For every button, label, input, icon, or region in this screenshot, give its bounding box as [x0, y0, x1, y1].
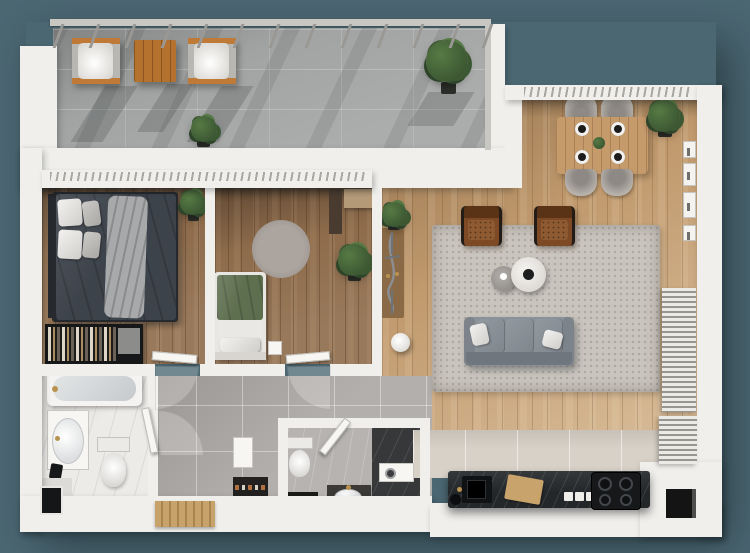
dining-corner-plant	[648, 100, 680, 132]
armchair-seat	[468, 220, 495, 240]
floor-shaft	[40, 486, 63, 515]
panel-handle	[687, 148, 690, 156]
slatted-radiator	[662, 288, 696, 412]
bathtub-faucet	[52, 386, 58, 392]
sink-faucet	[457, 487, 462, 492]
wall-panel	[683, 192, 696, 218]
bedroom-divider-wall	[205, 180, 215, 376]
living-left-wall	[505, 85, 522, 188]
living-window-glazing	[524, 87, 692, 97]
slatted-radiator	[659, 416, 697, 464]
centerpiece-plant	[593, 137, 605, 149]
bottom-exterior-wall	[20, 496, 432, 532]
basin-faucet	[346, 485, 351, 490]
cup	[500, 273, 507, 280]
wall-panel	[683, 163, 696, 186]
washing-machine	[379, 463, 414, 482]
burner	[599, 494, 611, 506]
dining-chair	[565, 169, 597, 196]
toilet-tank	[286, 437, 313, 449]
burner	[598, 477, 612, 491]
pillow	[57, 229, 82, 259]
living-area-rug	[432, 225, 660, 392]
pillow	[220, 338, 260, 352]
switch-plate	[575, 492, 584, 501]
place-setting	[575, 122, 589, 136]
toilet-room-wall	[278, 428, 288, 500]
throw-blanket	[104, 195, 148, 318]
panel-handle	[687, 203, 690, 211]
bedroom-plant	[338, 244, 370, 276]
panel-handle	[687, 172, 690, 180]
single-bed-duvet	[217, 275, 263, 320]
pillow	[57, 198, 83, 227]
pillow	[82, 231, 102, 259]
panel-handle	[687, 232, 690, 240]
nightstand	[268, 341, 282, 355]
terrace-lounge-chair	[188, 38, 236, 84]
switch-plate	[564, 492, 573, 501]
terrace-tree	[426, 40, 468, 82]
entrance-doormat	[155, 501, 215, 527]
wall-panel	[683, 141, 696, 158]
round-rug	[252, 220, 310, 278]
floor-pouf	[391, 333, 410, 352]
burner	[620, 494, 632, 506]
wardrobe-drawer-unit	[118, 328, 140, 354]
bed-sheet	[217, 320, 263, 338]
place-setting	[575, 150, 589, 164]
bedroom-window-glazing	[50, 172, 366, 181]
washer-drum	[385, 468, 396, 479]
shoe-row	[235, 485, 266, 490]
entry-plant	[382, 202, 407, 227]
toilet-bowl	[289, 450, 310, 477]
dresser	[344, 189, 372, 208]
toilet-room-wall	[420, 418, 430, 505]
toilet-tank	[97, 437, 130, 452]
toilet-room-wall	[278, 418, 430, 428]
wall-panel	[683, 225, 696, 241]
tree-pot	[441, 82, 456, 94]
left-exterior-wall	[20, 148, 42, 532]
hanging-clothes	[48, 327, 116, 361]
burner	[619, 477, 633, 491]
kettle	[450, 494, 461, 505]
pillow	[81, 200, 101, 227]
master-bed-headboard	[48, 194, 55, 318]
sofa-cushion	[506, 319, 534, 353]
terrace-plant	[191, 116, 217, 142]
bicycle	[381, 228, 404, 318]
chair-cushion	[194, 43, 230, 79]
washbasin	[52, 418, 84, 464]
tall-wardrobe	[329, 189, 342, 234]
table-tray	[523, 269, 534, 280]
floor-plan-scene	[0, 0, 750, 553]
leather-armchair	[461, 206, 502, 246]
single-bed-headboard	[214, 352, 266, 360]
armchair-seat	[541, 220, 568, 240]
sofa-backrest	[466, 352, 572, 365]
hall-wall	[42, 364, 155, 376]
dining-chair	[601, 169, 633, 196]
place-setting	[611, 122, 625, 136]
basin-faucet	[55, 436, 60, 441]
hall-wall	[200, 364, 285, 376]
terrace-lounge-chair	[72, 38, 120, 84]
leather-armchair	[534, 206, 575, 246]
hall-wall	[330, 364, 382, 376]
terrace-table	[134, 40, 176, 82]
hall-cabinet	[233, 437, 253, 468]
sink-basin	[467, 480, 486, 499]
bedroom-plant	[180, 190, 205, 215]
place-setting	[611, 150, 625, 164]
ventilation-shaft	[666, 489, 696, 518]
toilet-bowl	[101, 453, 126, 487]
chair-cushion	[78, 43, 114, 79]
bathtub-basin	[53, 376, 136, 401]
